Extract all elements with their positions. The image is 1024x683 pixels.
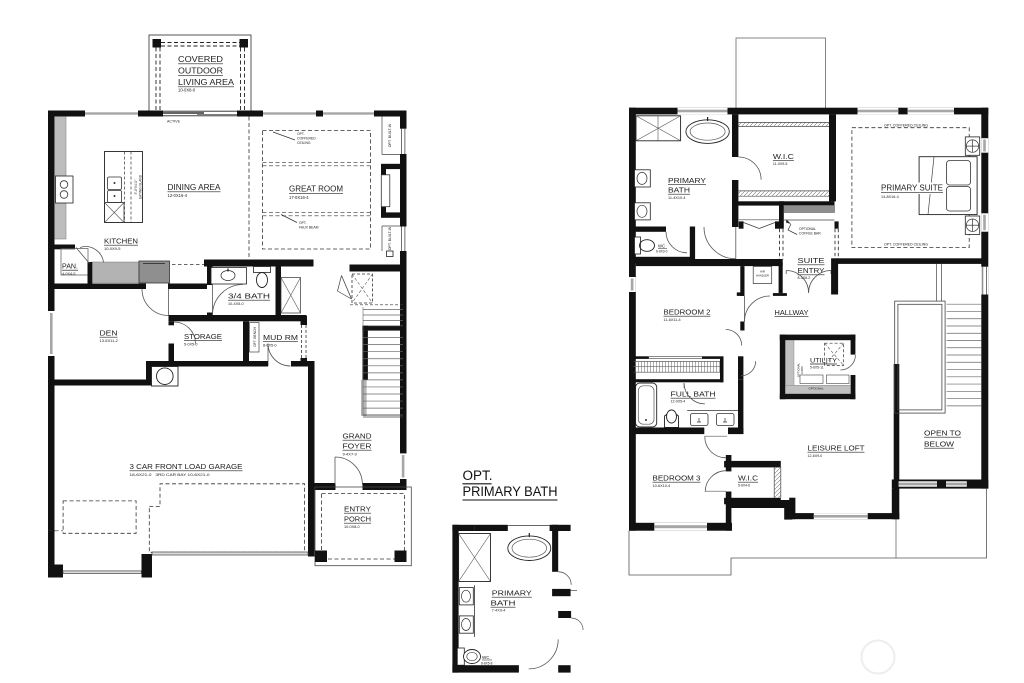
svg-text:W.I.C: W.I.C [738, 476, 758, 483]
svg-text:OPT.: OPT. [297, 132, 305, 136]
svg-text:PRIMARY: PRIMARY [668, 176, 706, 185]
svg-text:GREAT ROOM: GREAT ROOM [289, 185, 343, 194]
svg-text:8-6X5-0: 8-6X5-0 [263, 343, 277, 347]
svg-text:STORAGE: STORAGE [184, 334, 222, 341]
svg-text:ACTIVE: ACTIVE [167, 120, 181, 124]
svg-text:OPT.: OPT. [463, 468, 493, 483]
svg-text:12-0X5-4: 12-0X5-4 [671, 400, 686, 404]
svg-text:17-0X16-4: 17-0X16-4 [289, 195, 309, 200]
svg-text:14-8X16-4: 14-8X16-4 [881, 195, 899, 199]
svg-text:BATH: BATH [668, 186, 690, 195]
svg-text:WC: WC [482, 655, 490, 660]
svg-text:OPT. BUILT-IN: OPT. BUILT-IN [388, 226, 392, 250]
svg-text:OPT. COFFERED CEILING: OPT. COFFERED CEILING [884, 124, 928, 128]
svg-text:OPT. BENCH: OPT. BENCH [253, 326, 257, 346]
svg-text:6-0X3-0: 6-0X3-0 [656, 250, 668, 254]
svg-text:BEDROOM 3: BEDROOM 3 [653, 474, 701, 483]
svg-text:3 CAR FRONT LOAD GARAGE: 3 CAR FRONT LOAD GARAGE [130, 462, 243, 471]
svg-text:UTILITY: UTILITY [810, 358, 838, 365]
svg-text:BELOW: BELOW [924, 440, 955, 449]
svg-text:OPEN TO: OPEN TO [924, 429, 961, 438]
svg-text:12-0X16-4: 12-0X16-4 [168, 193, 188, 198]
svg-text:MUD RM: MUD RM [263, 335, 298, 342]
svg-text:GRAND: GRAND [343, 432, 373, 441]
svg-text:OPT.: OPT. [299, 221, 307, 225]
svg-text:DINING AREA: DINING AREA [168, 183, 222, 192]
svg-text:10-4X5-0: 10-4X5-0 [228, 302, 244, 306]
svg-text:W.I.C: W.I.C [773, 154, 794, 161]
svg-text:LEISURE LOFT: LEISURE LOFT [808, 444, 865, 453]
svg-text:KITCHEN: KITCHEN [104, 237, 138, 246]
svg-text:COFFERED: COFFERED [297, 137, 316, 141]
svg-text:11-6X11-4: 11-6X11-4 [664, 318, 681, 322]
svg-text:CEILING: CEILING [297, 141, 311, 145]
svg-text:OPT. COFFERED CEILING: OPT. COFFERED CEILING [884, 242, 928, 246]
svg-text:FOYER: FOYER [343, 442, 373, 451]
svg-text:EATING ISLAND: EATING ISLAND [139, 174, 143, 199]
svg-text:5'-0"X4'-0": 5'-0"X4'-0" [134, 180, 138, 195]
svg-text:10-0X9-5: 10-0X9-5 [104, 246, 121, 251]
svg-text:11-4X10-4: 11-4X10-4 [668, 196, 685, 200]
svg-text:PRIMARY: PRIMARY [492, 589, 532, 598]
svg-text:OPTIONAL: OPTIONAL [808, 387, 824, 391]
svg-text:18-6X21-0 3RD CAR BAY 10-6X2: 18-6X21-0 3RD CAR BAY 10-6X21-0 [130, 473, 210, 477]
svg-text:5-6X5-11: 5-6X5-11 [810, 365, 824, 369]
svg-text:5-6X4-6: 5-6X4-6 [738, 484, 750, 488]
svg-text:PRIMARY BATH: PRIMARY BATH [463, 484, 558, 499]
svg-text:FAUX BEAM: FAUX BEAM [299, 226, 319, 230]
svg-text:BEDROOM 2: BEDROOM 2 [664, 308, 711, 317]
svg-text:3/4 BATH: 3/4 BATH [228, 294, 270, 301]
svg-text:HANDLER: HANDLER [756, 274, 770, 278]
svg-text:4-0X4-5: 4-0X4-5 [62, 272, 76, 276]
svg-text:13-5X11-2: 13-5X11-2 [100, 338, 119, 343]
svg-text:10-0X8-0: 10-0X8-0 [178, 88, 196, 93]
svg-text:9-4X7-9: 9-4X7-9 [343, 451, 358, 456]
svg-text:COVERED: COVERED [178, 55, 223, 64]
svg-text:7-4X9-4: 7-4X9-4 [492, 609, 506, 613]
svg-text:PORCH: PORCH [344, 515, 371, 524]
svg-text:BATH: BATH [491, 599, 516, 608]
svg-text:8-8X5-8: 8-8X5-8 [481, 662, 493, 666]
svg-text:ENTRY: ENTRY [798, 266, 825, 275]
svg-text:OPTIONAL: OPTIONAL [799, 227, 816, 231]
svg-text:HALLWAY: HALLWAY [775, 308, 809, 317]
svg-text:ENTRY: ENTRY [344, 505, 371, 514]
svg-text:COFFEE BAR: COFFEE BAR [799, 232, 821, 236]
svg-text:FULL BATH: FULL BATH [671, 392, 716, 399]
svg-text:SUITE: SUITE [798, 256, 825, 265]
svg-text:12-6X9-0: 12-6X9-0 [808, 454, 823, 458]
svg-text:CABS: CABS [800, 366, 804, 374]
svg-text:11-0X9-5: 11-0X9-5 [773, 162, 788, 166]
svg-text:OUTDOOR: OUTDOOR [178, 67, 223, 76]
svg-text:OPT. BUILT-IN: OPT. BUILT-IN [388, 123, 392, 147]
svg-text:10-6X10-4: 10-6X10-4 [653, 484, 671, 488]
svg-text:10-0X8-0: 10-0X8-0 [344, 525, 360, 529]
svg-text:PRIMARY SUITE: PRIMARY SUITE [881, 184, 943, 193]
svg-text:LIVING AREA: LIVING AREA [178, 78, 235, 87]
svg-text:DEN: DEN [100, 329, 118, 338]
svg-text:PAN.: PAN. [62, 264, 78, 271]
svg-text:WC: WC [658, 244, 665, 249]
